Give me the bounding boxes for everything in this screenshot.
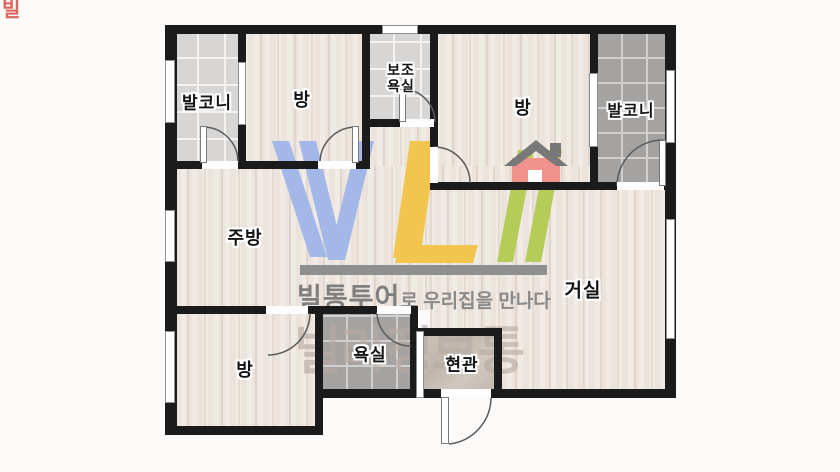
window-balcony-left-outer	[165, 60, 175, 123]
label-living-room: 거실	[565, 276, 602, 303]
entrance-opening	[416, 331, 424, 398]
window-bedroom-bottom-left	[165, 331, 175, 403]
watermark-corner-mark: 빌	[2, 0, 20, 22]
label-balcony-right: 발코니	[607, 97, 654, 121]
door-leaf-bedroom-top-left	[352, 126, 359, 163]
label-aux-bathroom-line2: 욕실	[387, 78, 415, 94]
label-aux-bathroom: 보조 욕실	[387, 62, 415, 94]
door-leaf-balcony-left	[200, 126, 207, 163]
watermark-brand-text: 빌라정보통	[294, 309, 523, 384]
wall-auxbath-bedroom	[430, 29, 438, 147]
window-living-room-right	[666, 219, 675, 339]
wall-entrance-top	[418, 328, 502, 336]
door-leaf-front-door	[441, 397, 449, 444]
door-gap-balcony-left	[202, 161, 238, 169]
floor-hallway	[366, 124, 438, 172]
wall-bedroom-auxbath	[362, 29, 370, 169]
label-kitchen: 주방	[227, 224, 262, 250]
label-bedroom-bottom: 방	[236, 356, 254, 382]
door-gap-bedroom-top-left	[318, 161, 356, 169]
label-bedroom-top-left: 방	[293, 86, 311, 112]
label-balcony-left: 발코니	[182, 89, 232, 114]
door-gap-bedroom-bottom	[266, 306, 308, 314]
label-bedroom-top-right: 방	[514, 94, 532, 120]
window-balcony-left-inner	[238, 62, 246, 125]
label-bathroom: 욕실	[353, 341, 386, 366]
label-entrance: 현관	[445, 351, 478, 376]
wall-entrance-right	[494, 331, 502, 398]
window-balcony-right-outer	[666, 70, 675, 143]
door-gap-bathroom	[377, 306, 411, 314]
door-arc-front-door	[449, 398, 491, 444]
wall-bottom-bedroom	[165, 426, 323, 435]
door-gap-bedroom-top-right	[430, 147, 438, 183]
window-balcony-right-inner	[589, 73, 598, 147]
door-leaf-balcony-right	[659, 140, 666, 186]
floorplan-image: 빌통투어로 우리집을 만나다 빌라정보통 빌	[0, 0, 840, 472]
wall-bedroom-bathroom	[315, 310, 323, 435]
door-gap-balcony-right	[617, 182, 664, 190]
label-aux-bathroom-line1: 보조	[387, 62, 415, 78]
window-kitchen-left	[165, 210, 175, 262]
window-aux-bathroom-top	[382, 25, 418, 34]
